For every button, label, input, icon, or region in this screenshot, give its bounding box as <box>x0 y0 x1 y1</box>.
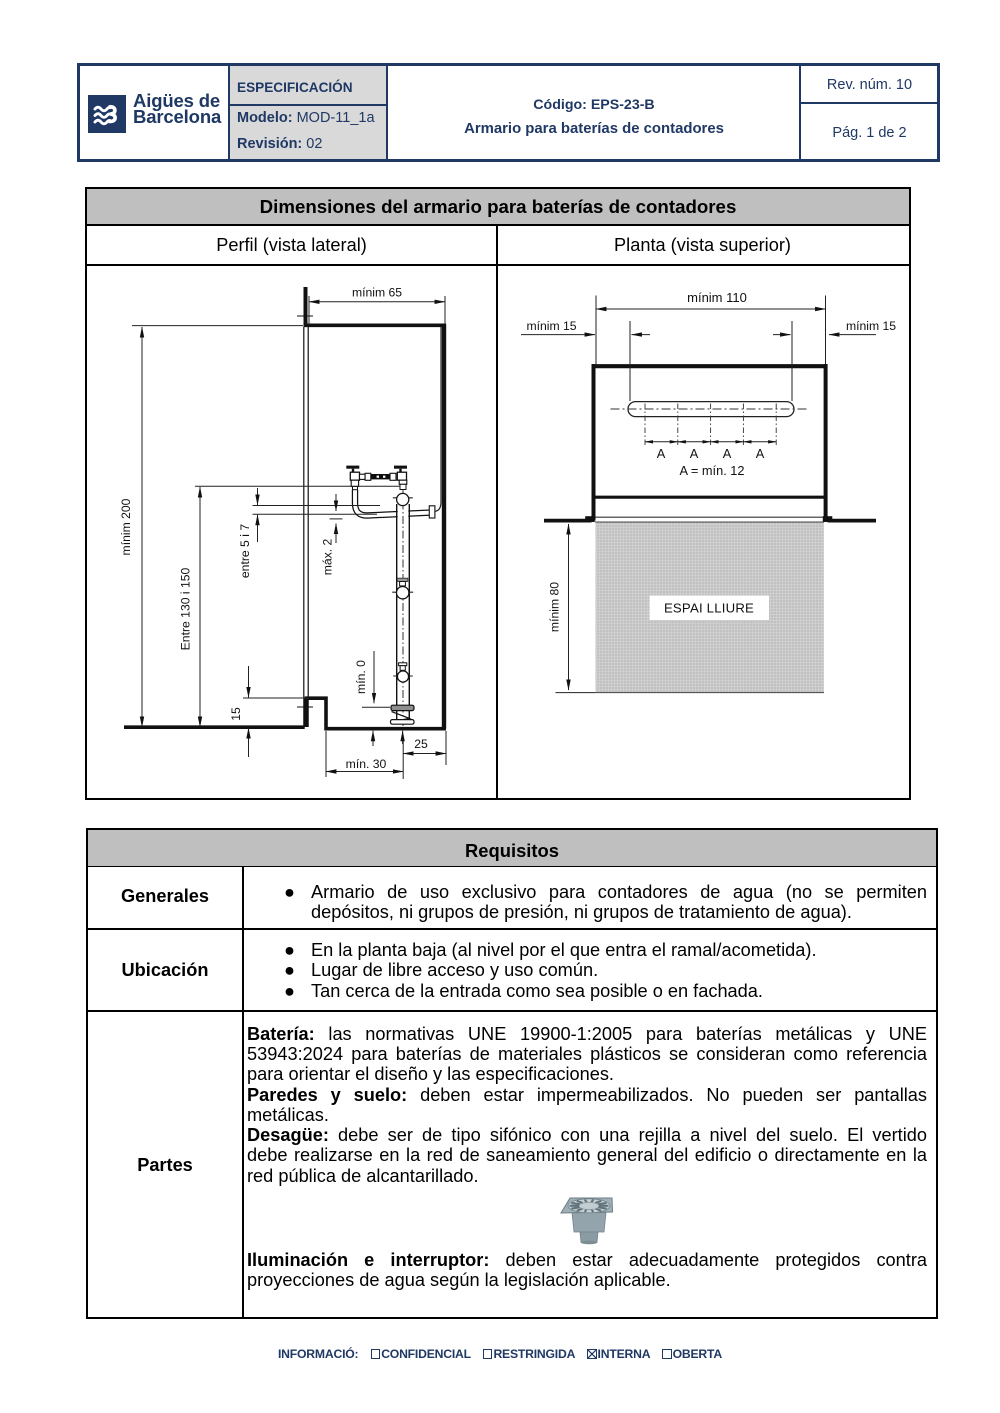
svg-text:15: 15 <box>229 707 243 721</box>
svg-text:entre 5 i 7: entre 5 i 7 <box>238 524 252 578</box>
svg-text:ESPAI LLIURE: ESPAI LLIURE <box>664 601 754 616</box>
svg-text:A: A <box>690 446 699 461</box>
svg-text:A = mín. 12: A = mín. 12 <box>679 463 744 478</box>
svg-text:A: A <box>723 446 732 461</box>
svg-text:mín. 30: mín. 30 <box>346 757 387 771</box>
svg-text:mínim 15: mínim 15 <box>526 319 576 333</box>
svg-text:Entre 130 i 150: Entre 130 i 150 <box>179 567 193 650</box>
svg-text:mín. 0: mín. 0 <box>354 660 368 694</box>
svg-text:A: A <box>657 446 666 461</box>
svg-text:mínim 65: mínim 65 <box>352 286 402 300</box>
svg-text:mínim 110: mínim 110 <box>687 290 747 305</box>
svg-text:25: 25 <box>414 737 428 751</box>
svg-text:máx. 2: máx. 2 <box>321 538 335 575</box>
svg-text:mínim 80: mínim 80 <box>548 582 562 632</box>
svg-text:mínim 200: mínim 200 <box>119 498 133 555</box>
svg-text:mínim 15: mínim 15 <box>846 319 896 333</box>
svg-text:A: A <box>756 446 765 461</box>
